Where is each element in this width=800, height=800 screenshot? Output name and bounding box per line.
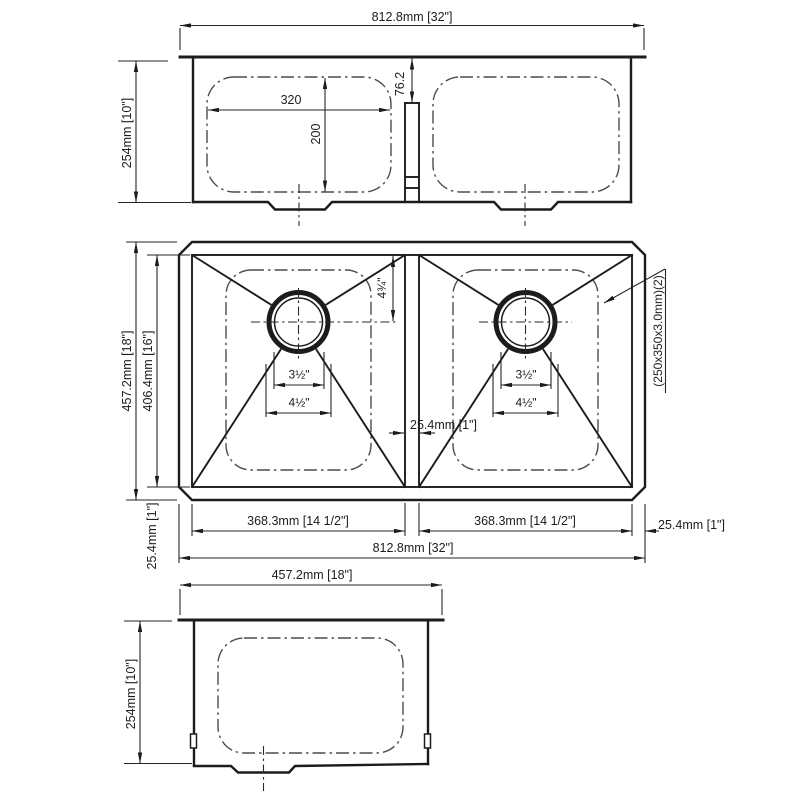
plan-outer-rim [179,242,645,500]
front-elevation-view: 812.8mm [32"] 254mm [10"] 320 200 76.2 [118,10,645,226]
dim-front-bowl-depth: 200 [309,78,325,192]
plan-overall-width-label: 812.8mm [32"] [373,541,454,555]
plan-bowl-note: (250x350x3.0mm)(2) [604,269,666,393]
side-left-mounting-clip [191,734,197,748]
plan-outer-depth-label: 457.2mm [18"] [120,331,134,412]
dim-front-bowl-width: 320 [208,93,390,110]
side-bowl-phantom [218,638,403,753]
plan-inner-wall [192,255,632,487]
side-right-mounting-clip [425,734,431,748]
plan-right-drain-inner-label: 3½" [516,368,537,382]
dim-side-width: 457.2mm [18"] [180,568,442,615]
front-bowl-depth-label: 200 [309,124,323,145]
dim-front-overall-width: 812.8mm [32"] [180,10,644,50]
plan-divider-width-label: 25.4mm [1"] [410,418,477,432]
dim-plan-bottom-chain: 368.3mm [14 1/2"] 368.3mm [14 1/2"] 25.4… [179,503,725,563]
plan-side-wall-label: 25.4mm [1"] [658,518,725,532]
plan-left-drain-outer-label: 4½" [289,396,310,410]
plan-inner-depth-label: 406.4mm [16"] [141,331,155,412]
side-height-label: 254mm [10"] [124,659,138,729]
dim-plan-inner-depth: 406.4mm [16"] [141,255,190,487]
plan-bowl-note-label: (250x350x3.0mm)(2) [651,275,665,386]
plan-left-drain-inner-label: 3½" [289,368,310,382]
drawing-canvas: 812.8mm [32"] 254mm [10"] 320 200 76.2 [0,0,800,800]
side-width-label: 457.2mm [18"] [272,568,353,582]
dim-plan-divider-width: 25.4mm [1"] [389,418,477,433]
plan-drain-offset-label: 4¾" [375,278,389,299]
dim-side-height: 254mm [10"] [124,621,192,764]
side-elevation-view: 457.2mm [18"] 254mm [10"] [124,568,443,791]
plan-right-bowl-width-label: 368.3mm [14 1/2"] [474,514,576,528]
dim-front-height: 254mm [10"] [118,61,191,203]
front-bowl-width-label: 320 [281,93,302,107]
plan-right-drain-outer-label: 4½" [516,396,537,410]
dim-front-divider-drop: 76.2 [393,59,412,103]
front-right-bowl-phantom [433,77,619,192]
plan-right-drain [479,288,572,360]
front-height-label: 254mm [10"] [120,98,134,168]
plan-center-divider [405,255,419,487]
plan-left-bowl-width-label: 368.3mm [14 1/2"] [247,514,349,528]
plan-front-wall-label: 25.4mm [1"] [145,503,159,570]
front-divider-drop-label: 76.2 [393,72,407,96]
plan-view: 4¾" 3½" 3½" 4½" 4½" [120,242,725,569]
sink-dimension-drawing: 812.8mm [32"] 254mm [10"] 320 200 76.2 [0,0,800,800]
front-center-divider [405,103,419,202]
dim-plan-drain-offset: 4¾" [375,256,393,321]
front-overall-width-label: 812.8mm [32"] [372,10,453,24]
